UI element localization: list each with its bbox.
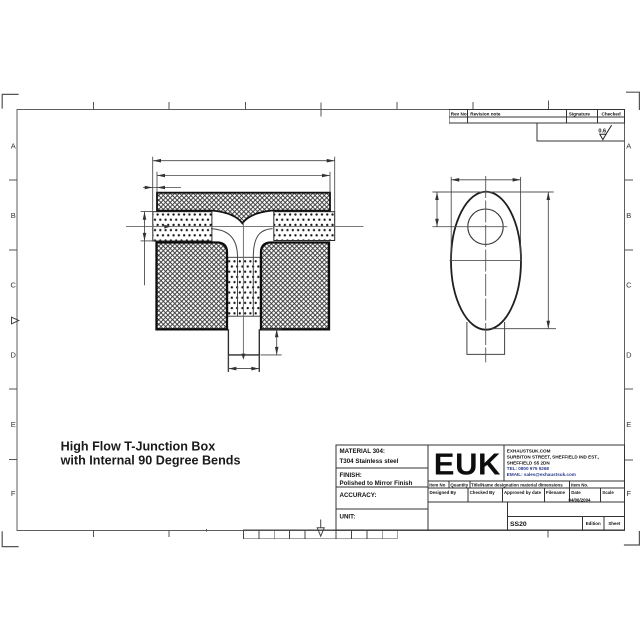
svg-text:B: B: [626, 211, 631, 220]
svg-text:B: B: [11, 211, 16, 220]
svg-text:EUK: EUK: [434, 447, 501, 482]
svg-text:D: D: [10, 351, 16, 360]
svg-text:Edition: Edition: [586, 521, 601, 526]
svg-text:F: F: [11, 489, 16, 498]
svg-text:D: D: [626, 351, 632, 360]
svg-text:Title/Name designation materia: Title/Name designation material dimensio…: [471, 482, 563, 487]
svg-text:Quantity: Quantity: [450, 482, 468, 487]
svg-text:UNIT:: UNIT:: [340, 514, 356, 521]
svg-text:04/06/2004: 04/06/2004: [569, 498, 592, 503]
svg-text:Checked: Checked: [602, 111, 621, 116]
svg-text:Revision note: Revision note: [470, 111, 501, 116]
svg-text:MATERIAL 304:: MATERIAL 304:: [340, 448, 386, 455]
svg-text:EMAIL: sales@exhaustsuk.com: EMAIL: sales@exhaustsuk.com: [507, 472, 576, 477]
svg-text:TEL: 0800 975 9268: TEL: 0800 975 9268: [507, 466, 550, 471]
svg-text:Signature: Signature: [569, 111, 591, 116]
svg-text:with Internal 90 Degree Bends: with Internal 90 Degree Bends: [60, 454, 241, 468]
svg-text:Date: Date: [571, 490, 581, 495]
svg-text:FINISH:: FINISH:: [340, 472, 362, 479]
svg-text:Checked By: Checked By: [470, 490, 496, 495]
svg-text:E: E: [626, 420, 631, 429]
svg-text:Polished to Mirror Finish: Polished to Mirror Finish: [340, 480, 413, 487]
svg-text:A: A: [11, 142, 16, 151]
svg-text:C: C: [10, 281, 16, 290]
svg-text:SHEFFIELD S5 2DN: SHEFFIELD S5 2DN: [507, 460, 551, 465]
svg-text:T304 Stainless steel: T304 Stainless steel: [340, 458, 399, 465]
svg-text:SS20: SS20: [510, 521, 527, 528]
svg-text:Approved by date: Approved by date: [504, 490, 542, 495]
svg-text:F: F: [627, 489, 632, 498]
svg-text:E: E: [11, 420, 16, 429]
svg-text:SURBITON STREET, SHEFFIELD IND: SURBITON STREET, SHEFFIELD IND EST.,: [507, 454, 599, 459]
svg-text:Designed By: Designed By: [430, 490, 457, 495]
svg-text:ACCURACY:: ACCURACY:: [340, 492, 377, 499]
svg-text:Item No: Item No: [429, 482, 445, 487]
svg-text:0.6: 0.6: [598, 129, 606, 135]
svg-text:Sheet: Sheet: [608, 521, 620, 526]
svg-text:C: C: [626, 281, 632, 290]
svg-text:Scale: Scale: [602, 490, 614, 495]
svg-text:Rev No:: Rev No:: [451, 111, 469, 116]
svg-text:EXHAUSTSUK.COM: EXHAUSTSUK.COM: [507, 449, 551, 454]
svg-text:Filename: Filename: [546, 490, 566, 495]
svg-text:High Flow T-Junction Box: High Flow T-Junction Box: [61, 440, 216, 454]
svg-text:A: A: [626, 142, 631, 151]
svg-text:Item No.: Item No.: [571, 482, 588, 487]
